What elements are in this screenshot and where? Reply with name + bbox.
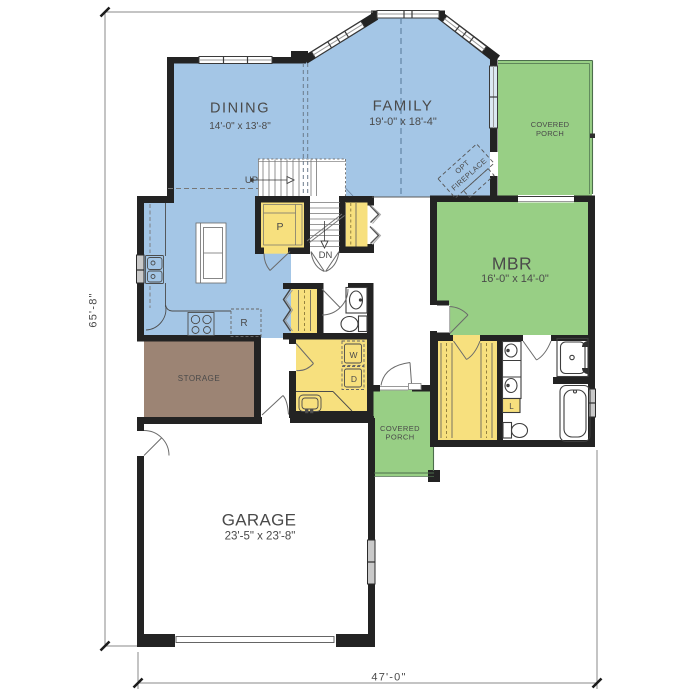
svg-text:PORCH: PORCH bbox=[385, 433, 414, 442]
svg-text:DINING: DINING bbox=[210, 101, 270, 117]
svg-text:23'-5" x 23'-8": 23'-5" x 23'-8" bbox=[225, 531, 296, 543]
svg-text:DN: DN bbox=[319, 250, 333, 261]
svg-text:D: D bbox=[351, 374, 357, 384]
svg-text:STORAGE: STORAGE bbox=[178, 374, 220, 383]
svg-text:UP: UP bbox=[245, 175, 258, 186]
svg-text:P: P bbox=[276, 221, 283, 233]
svg-text:L: L bbox=[509, 402, 514, 411]
svg-text:R: R bbox=[240, 318, 247, 329]
svg-text:COVERED: COVERED bbox=[531, 120, 570, 129]
svg-text:GARAGE: GARAGE bbox=[222, 511, 297, 530]
svg-text:65'-8": 65'-8" bbox=[88, 292, 100, 327]
svg-text:PORCH: PORCH bbox=[536, 129, 564, 138]
svg-text:W: W bbox=[349, 350, 357, 360]
svg-text:47'-0": 47'-0" bbox=[371, 672, 406, 684]
svg-text:19'-0" x 18'-4": 19'-0" x 18'-4" bbox=[369, 116, 437, 128]
svg-text:FAMILY: FAMILY bbox=[373, 98, 434, 115]
svg-text:14'-0" x 13'-8": 14'-0" x 13'-8" bbox=[209, 121, 271, 132]
svg-text:16'-0" x 14'-0": 16'-0" x 14'-0" bbox=[481, 273, 549, 285]
svg-text:MBR: MBR bbox=[492, 254, 532, 274]
